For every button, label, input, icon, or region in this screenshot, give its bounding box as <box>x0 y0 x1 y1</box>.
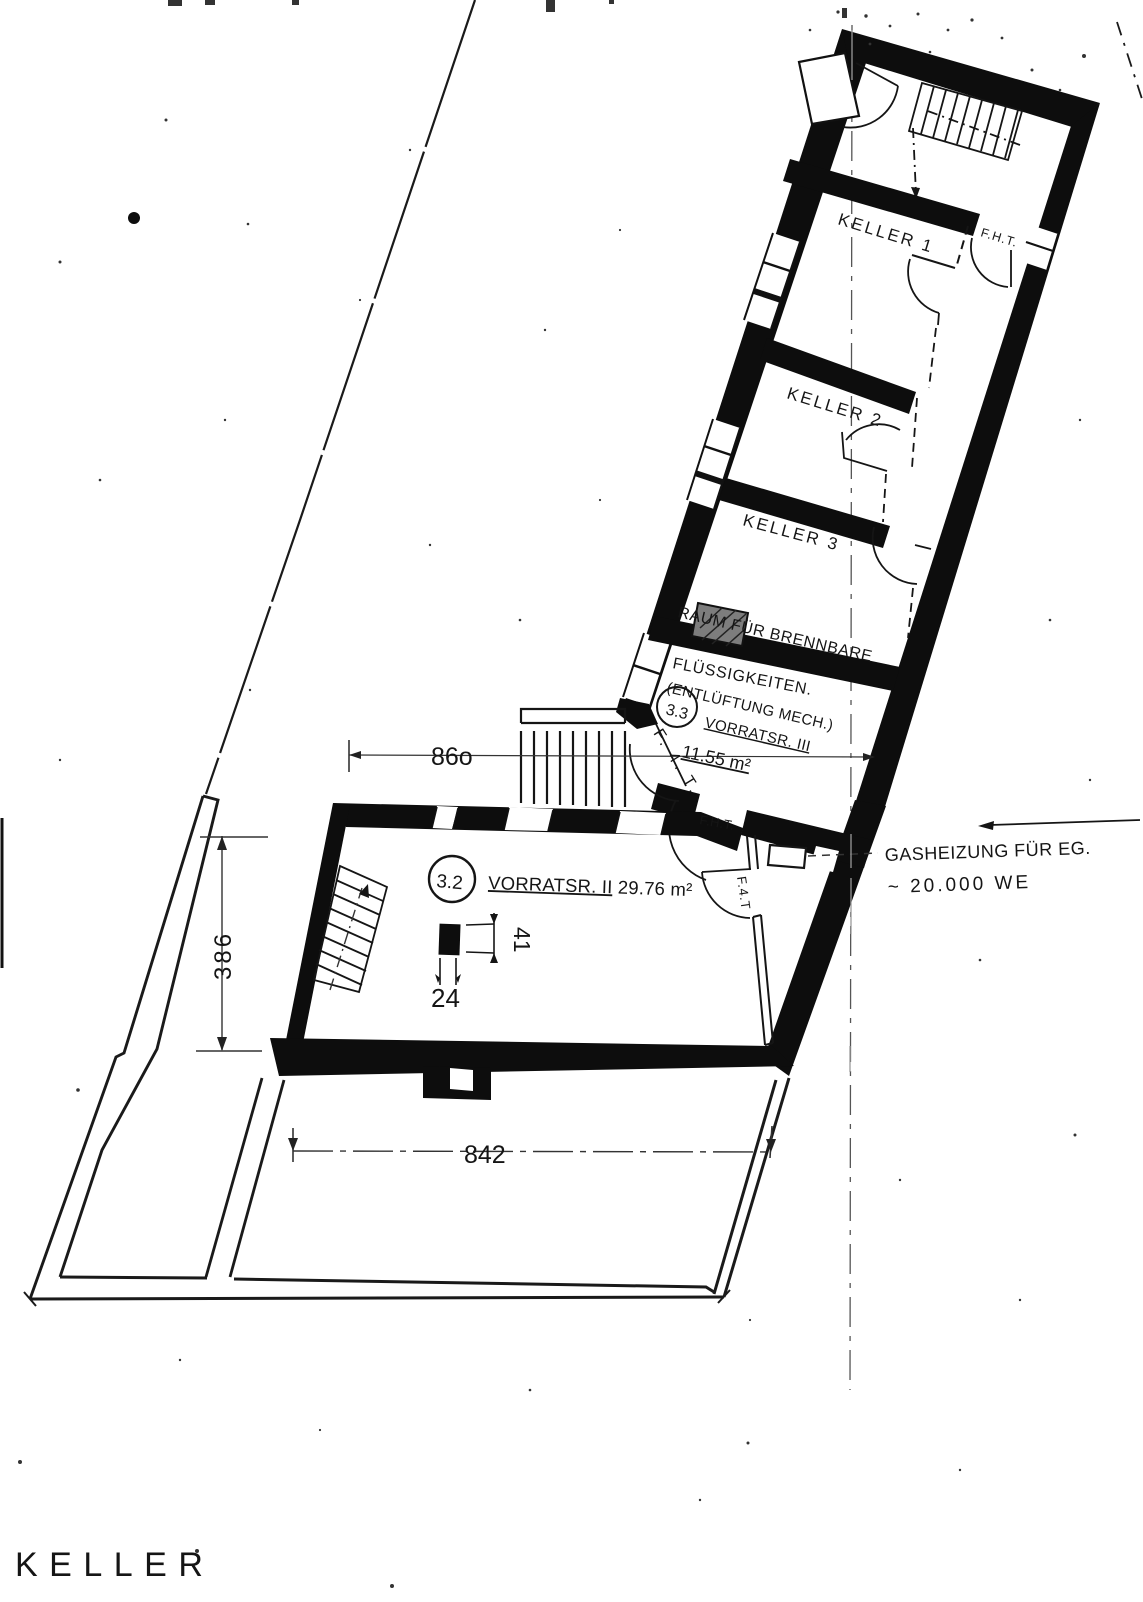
svg-text:KELLER: KELLER <box>15 1546 214 1584</box>
svg-text:3.2: 3.2 <box>436 871 464 894</box>
svg-text:842: 842 <box>464 1141 506 1169</box>
svg-text:41: 41 <box>509 927 535 953</box>
svg-text:86o: 86o <box>431 743 473 771</box>
svg-text:24: 24 <box>431 983 460 1013</box>
svg-text:386: 386 <box>210 931 237 980</box>
